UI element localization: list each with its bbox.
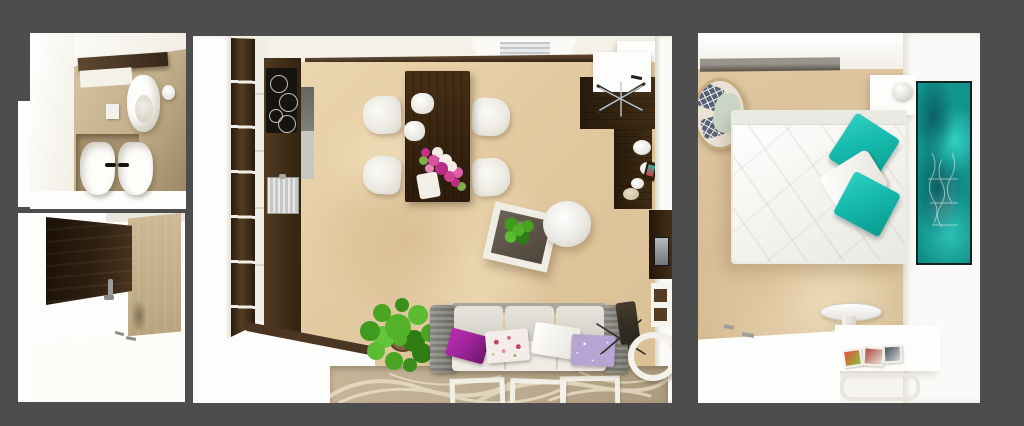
hall-shadow-smudge <box>131 299 147 333</box>
leaning-clock <box>628 332 672 381</box>
hall-dark-wood-panel <box>46 217 132 305</box>
tv-screen <box>654 237 669 266</box>
burner-2 <box>279 93 298 112</box>
bathroom-left-wall <box>30 33 74 209</box>
apartment-render-canvas <box>0 0 1024 426</box>
bedroom-counter <box>698 331 840 403</box>
kitchen-faucet <box>279 174 286 179</box>
bowl <box>623 188 639 200</box>
wall-shelf-unit <box>651 283 671 327</box>
sink-left <box>80 142 115 195</box>
bedroom-chair <box>840 373 920 401</box>
burner-4 <box>278 115 296 133</box>
sink-right-faucet <box>118 163 129 167</box>
bedroom-desk <box>835 325 940 371</box>
office-chair <box>594 78 648 120</box>
rug-white-frame-3 <box>560 375 621 403</box>
pendant-lamp-1 <box>411 93 434 114</box>
toilet-bowl <box>135 95 153 123</box>
glass-panel-light <box>301 131 314 179</box>
wardrobe-column <box>231 38 255 355</box>
bed-head-rail <box>733 112 905 125</box>
burner-1 <box>270 75 288 93</box>
flower-vase <box>416 171 441 199</box>
hall-faucet-base <box>104 295 114 300</box>
flower-bouquet <box>421 148 430 157</box>
hallway-kitchen-panel <box>18 213 185 402</box>
living-room-panel <box>193 36 672 403</box>
shelf-cubby-1 <box>654 289 667 302</box>
dining-chair-2 <box>362 155 403 196</box>
desk-photo-2 <box>862 346 884 366</box>
paper-roll <box>162 85 175 100</box>
desk-photo-3 <box>883 345 903 364</box>
hall-white-counter <box>32 325 185 402</box>
shelf-cubby-2 <box>654 308 667 321</box>
ocean-artwork <box>916 81 972 265</box>
bathroom-floor-strip <box>30 191 186 209</box>
flush-plate <box>106 104 119 119</box>
round-side-table <box>543 201 591 247</box>
floor-plant <box>363 298 433 378</box>
dining-chair-1 <box>362 95 402 135</box>
glass-panel-dark <box>301 87 314 131</box>
bathroom-white-ledge <box>79 67 132 88</box>
counter-mark-1 <box>115 331 124 336</box>
toilet <box>127 75 160 132</box>
sink-right <box>118 142 153 195</box>
rug-white-frame-2 <box>509 378 566 403</box>
picture-frame-art <box>646 164 655 176</box>
cooktop <box>266 68 297 133</box>
pendant-lamp-2 <box>404 121 425 141</box>
coffee-table-plant <box>511 223 525 237</box>
plant-foliage <box>393 332 407 346</box>
desk-photo-1 <box>842 348 863 368</box>
kitchen-sink <box>267 177 299 214</box>
bathroom-panel <box>30 33 186 209</box>
sink-left-faucet <box>105 163 116 167</box>
pillow-floral <box>485 328 531 364</box>
tv-niche <box>649 210 672 279</box>
nightstand <box>870 75 916 115</box>
bedroom-panel <box>698 33 980 403</box>
gray-ledge <box>700 57 840 71</box>
plate-1 <box>633 140 651 155</box>
nightstand-lamp <box>892 82 912 100</box>
double-bed <box>731 110 907 264</box>
rug-white-frame-1 <box>449 377 505 403</box>
dining-chair-3 <box>471 97 511 137</box>
